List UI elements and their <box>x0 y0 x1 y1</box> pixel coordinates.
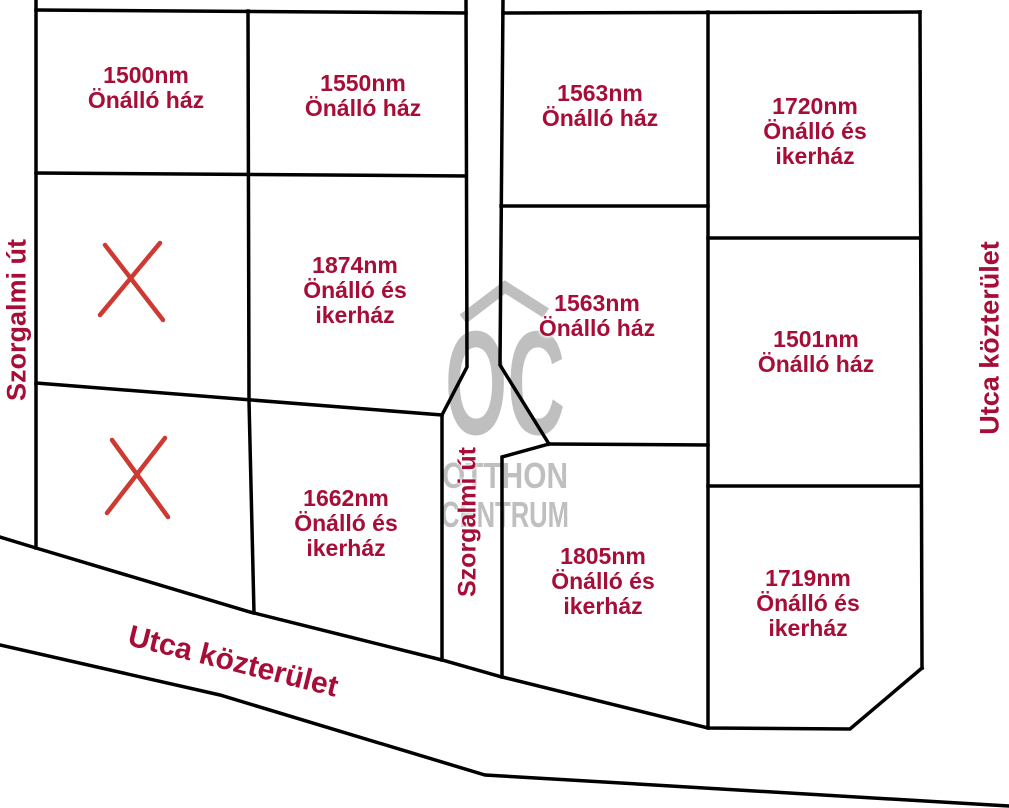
plot-type: Önálló és ikerház <box>745 119 885 169</box>
plot-area: 1719nm <box>738 566 878 591</box>
boundary-1805-top <box>549 444 708 445</box>
street-label-szorgalmi-ut-left: Szorgalmi út <box>2 239 33 401</box>
plot-type: Önálló ház <box>512 316 682 341</box>
cross-mark-upper <box>100 243 163 320</box>
boundary-row1-row2-left <box>36 173 466 176</box>
street-label-szorgalmi-ut-middle: Szorgalmi út <box>454 447 483 597</box>
plot-type: Önálló ház <box>278 96 448 121</box>
plot-label-1550: 1550nm Önálló ház <box>278 71 448 121</box>
plot-label-1720: 1720nm Önálló és ikerház <box>745 94 885 168</box>
plot-type: Önálló ház <box>731 352 901 377</box>
plot-area: 1662nm <box>276 486 416 511</box>
street-label-utca-kozterulet-right: Utca közterület <box>975 241 1006 435</box>
plot-type: Önálló és ikerház <box>533 569 673 619</box>
plot-area: 1500nm <box>61 63 231 88</box>
plot-type: Önálló és ikerház <box>285 278 425 328</box>
plot-area: 1563nm <box>515 81 685 106</box>
plot-label-1500: 1500nm Önálló ház <box>61 63 231 113</box>
plot-label-1501: 1501nm Önálló ház <box>731 327 901 377</box>
plot-area: 1563nm <box>512 291 682 316</box>
plot-map: OC OTTHON CENTRUM <box>0 0 1009 808</box>
plot-area: 1501nm <box>731 327 901 352</box>
plot-label-1805: 1805nm Önálló és ikerház <box>533 544 673 618</box>
plot-type: Önálló ház <box>61 88 231 113</box>
plot-type: Önálló és ikerház <box>738 591 878 641</box>
boundary-top-right <box>503 12 920 13</box>
boundary-1662-top-diagonal <box>36 383 442 415</box>
plot-type: Önálló ház <box>515 106 685 131</box>
plot-area: 1874nm <box>285 253 425 278</box>
plot-area: 1805nm <box>533 544 673 569</box>
plot-label-1719: 1719nm Önálló és ikerház <box>738 566 878 640</box>
plot-type: Önálló és ikerház <box>276 511 416 561</box>
plot-area: 1720nm <box>745 94 885 119</box>
cross-marks <box>100 243 168 517</box>
plot-label-1874: 1874nm Önálló és ikerház <box>285 253 425 327</box>
plot-label-1563-top: 1563nm Önálló ház <box>515 81 685 131</box>
plot-area: 1550nm <box>278 71 448 96</box>
boundary-left-column-vertical <box>248 11 254 613</box>
boundary-top-left <box>36 10 466 13</box>
plot-label-1662: 1662nm Önálló és ikerház <box>276 486 416 560</box>
cross-mark-lower <box>107 438 168 517</box>
boundary-street-far-edge <box>0 645 1009 806</box>
boundary-right-vertical <box>920 12 922 668</box>
plot-label-1563-bottom: 1563nm Önálló ház <box>512 291 682 341</box>
